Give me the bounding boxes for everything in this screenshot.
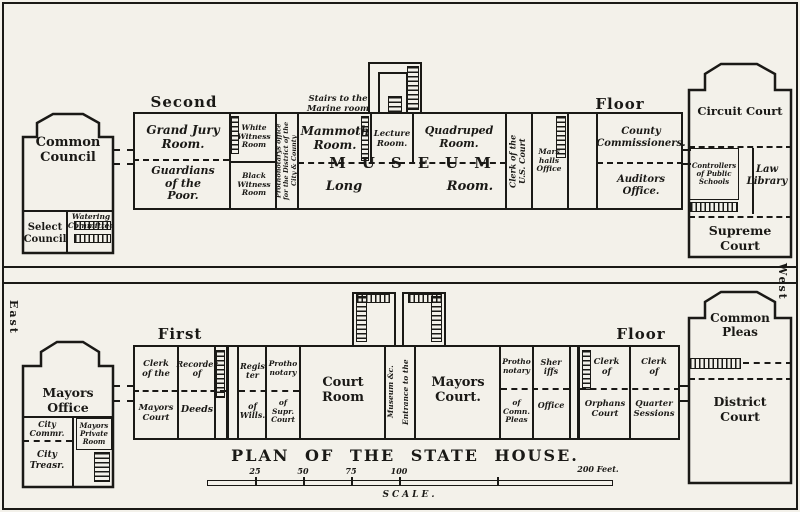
stairs-hatch bbox=[689, 358, 741, 369]
entrance-to-the-strip: Entrance to the bbox=[399, 347, 414, 437]
wall bbox=[597, 162, 683, 164]
room-supreme-court: Supreme Court bbox=[692, 220, 788, 258]
room-select-council: Select Council bbox=[24, 216, 66, 252]
room-court-room: Court Room bbox=[302, 362, 384, 418]
room-lecture: Lecture Room. bbox=[372, 122, 412, 156]
stairs-hatch bbox=[690, 202, 738, 212]
room-city-treasurer: City Treasr. bbox=[24, 445, 70, 477]
east-label: East bbox=[4, 286, 21, 348]
room-common-pleas: Common Pleas bbox=[692, 306, 788, 344]
room-guardians-of-poor: Guardians of the Poor. bbox=[138, 161, 228, 207]
plan-title: PLAN OF THE STATE HOUSE. bbox=[195, 446, 615, 466]
section-divider-bottom bbox=[3, 282, 797, 284]
room-prothonotary-supr-bottom: of Supr. Court bbox=[266, 390, 300, 434]
room-clerk-us-court: Clerk of the U.S. Court bbox=[505, 116, 531, 206]
room-circuit-court: Circuit Court bbox=[690, 102, 790, 122]
scale-label-25: 25 bbox=[245, 466, 265, 478]
room-city-commissioner: City Commr. bbox=[24, 419, 70, 439]
state-house-plan: East West Second Floor Common Council Wa… bbox=[0, 0, 800, 512]
room-prothonotary-comn-bottom: of Comn. Pleas bbox=[501, 390, 532, 434]
scale-label-75: 75 bbox=[341, 466, 361, 478]
room-sheriffs-office: Office bbox=[533, 398, 569, 414]
room-county-commissioners: County Commissioners. bbox=[600, 118, 682, 158]
wall bbox=[23, 440, 72, 442]
connector-wall bbox=[114, 149, 133, 151]
scale-tick bbox=[497, 477, 499, 486]
room-recorder-deeds: Deeds bbox=[178, 400, 216, 420]
room-prothonotary-supr-top: Protho notary bbox=[266, 354, 300, 384]
room-prothonotarys-office: Prothonotarys office for the District of… bbox=[276, 114, 298, 208]
room-sheriffs-top: Sher iffs bbox=[533, 352, 569, 382]
room-white-witness: White Witness Room bbox=[233, 116, 275, 158]
room-marshalls-office: Mars halls Office bbox=[532, 118, 566, 204]
stairs-to-marine-label: Stairs to the Marine room bbox=[296, 92, 380, 116]
wall bbox=[230, 161, 276, 163]
scale-label-50: 50 bbox=[293, 466, 313, 478]
room-register-wills: of Wills. bbox=[239, 394, 266, 428]
connector-wall bbox=[114, 400, 133, 402]
wall bbox=[689, 378, 792, 380]
wall bbox=[743, 362, 792, 364]
scale-tick bbox=[255, 477, 257, 486]
scale-tick bbox=[399, 477, 401, 486]
scale-label-200-feet: 200 Feet. bbox=[570, 464, 626, 476]
room-watering-committee: Watering Committee bbox=[68, 211, 114, 233]
stairs-hatch bbox=[356, 294, 390, 303]
stairs-hatch bbox=[94, 452, 110, 482]
stairs-hatch bbox=[74, 234, 111, 243]
second-floor-heading-left: Second bbox=[146, 94, 222, 112]
room-clerk-orphans-bottom: Orphans Court bbox=[580, 392, 630, 426]
entrance-museum-strip: Museum &c. bbox=[384, 347, 399, 437]
room-mammoth: Mammoth Room. bbox=[300, 120, 370, 156]
stairs-hatch bbox=[408, 294, 442, 303]
room-grand-jury: Grand Jury Room. bbox=[138, 118, 228, 156]
first-floor-heading-left: First bbox=[148, 326, 212, 344]
room-clerk-quarter-bottom: Quarter Sessions bbox=[630, 392, 678, 426]
wall bbox=[580, 388, 680, 390]
museum-long: Long bbox=[308, 176, 380, 198]
room-mayors-court: Mayors Court. bbox=[416, 362, 500, 418]
room-prothonotary-comn-top: Protho notary bbox=[501, 352, 532, 382]
room-district-court: District Court bbox=[692, 388, 788, 432]
section-divider-top bbox=[3, 266, 797, 268]
room-clerk-quarter-top: Clerk of bbox=[630, 352, 678, 382]
scale-caption: SCALE. bbox=[207, 489, 613, 502]
museum-long-room: Room. bbox=[430, 176, 510, 198]
connector-wall bbox=[114, 163, 133, 165]
room-clerk-mayors-court-bottom: Mayors Court bbox=[134, 396, 178, 430]
room-mayors-office: Mayors Office bbox=[23, 391, 113, 411]
stairs-hatch bbox=[388, 96, 402, 112]
wall bbox=[569, 347, 571, 438]
room-quadruped: Quadruped Room. bbox=[414, 120, 504, 156]
room-recorder-top: Recorder of bbox=[178, 352, 216, 386]
room-black-witness: Black Witness Room bbox=[233, 164, 275, 206]
museum-letters: MUSEUM bbox=[316, 156, 504, 172]
wall bbox=[567, 114, 569, 208]
room-auditors-office: Auditors Office. bbox=[600, 172, 682, 200]
wall bbox=[226, 347, 229, 438]
wall bbox=[689, 216, 792, 218]
scale-tick bbox=[351, 477, 353, 486]
room-clerk-orphans-top: Clerk of bbox=[584, 352, 629, 382]
room-register-top: Regis ter bbox=[239, 354, 266, 388]
room-mayors-private: Mayors Private Room bbox=[77, 419, 111, 449]
scale-label-100: 100 bbox=[387, 466, 411, 478]
wall bbox=[72, 417, 74, 487]
scale-bar bbox=[207, 480, 613, 486]
wall bbox=[133, 390, 226, 392]
first-floor-heading-right: Floor bbox=[608, 326, 674, 344]
room-clerk-mayors-court-top: Clerk of the bbox=[134, 352, 178, 386]
connector-wall bbox=[114, 385, 133, 387]
room-law-library: Law Library bbox=[744, 152, 790, 200]
scale-tick bbox=[303, 477, 305, 486]
room-controllers: Controllers of Public Schools bbox=[690, 150, 738, 198]
room-common-council: Common Council bbox=[26, 131, 110, 169]
stairs-hatch bbox=[407, 66, 419, 110]
